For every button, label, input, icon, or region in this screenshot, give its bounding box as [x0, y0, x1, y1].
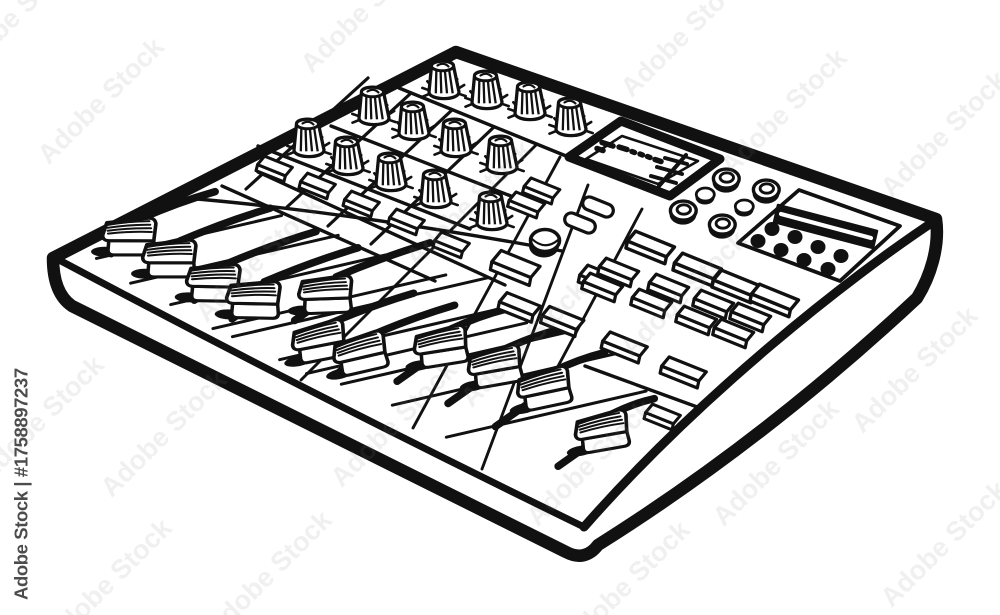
svg-text:Adobe Stock: Adobe Stock — [0, 0, 84, 84]
svg-text:Adobe Stock: Adobe Stock — [200, 504, 339, 615]
svg-text:Adobe Stock: Adobe Stock — [95, 364, 234, 503]
svg-text:Adobe Stock: Adobe Stock — [32, 31, 171, 170]
svg-text:Adobe Stock: Adobe Stock — [295, 0, 434, 79]
svg-text:Adobe Stock: Adobe Stock — [875, 474, 1000, 613]
svg-text:Adobe Stock | #1758897237: Adobe Stock | #1758897237 — [11, 368, 32, 600]
svg-text:Adobe Stock: Adobe Stock — [40, 512, 179, 615]
svg-text:Adobe Stock: Adobe Stock — [615, 0, 754, 103]
svg-text:Adobe Stock: Adobe Stock — [875, 64, 1000, 203]
